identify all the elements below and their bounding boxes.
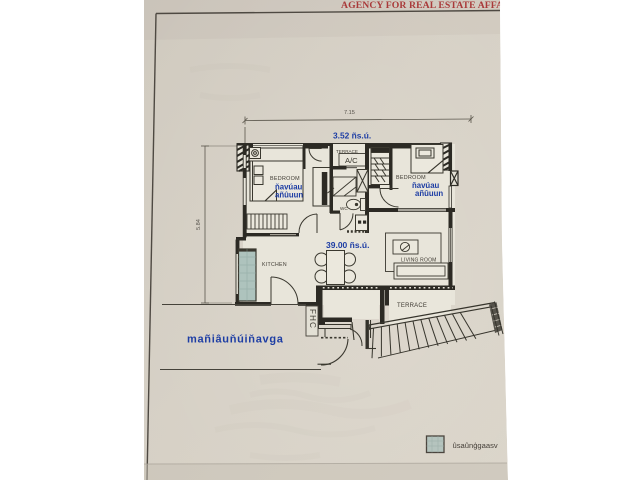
svg-text:TERRACE: TERRACE	[397, 303, 427, 309]
svg-text:añûuun: añûuun	[415, 189, 443, 198]
svg-text:WC: WC	[340, 206, 348, 211]
svg-text:mañiâuňúiňavga: mañiâuňúiňavga	[187, 334, 284, 346]
svg-text:7.15: 7.15	[344, 110, 355, 116]
svg-text:3.52 ñs.ú.: 3.52 ñs.ú.	[333, 131, 371, 141]
svg-text:FHC: FHC	[308, 309, 317, 329]
svg-text:5.84: 5.84	[196, 219, 202, 230]
svg-text:ûsaûnģgaasv: ûsaûnģgaasv	[453, 441, 498, 450]
svg-text:LIVING ROOM: LIVING ROOM	[401, 258, 437, 264]
svg-text:KITCHEN: KITCHEN	[262, 262, 287, 268]
svg-text:39.00 ñs.ú.: 39.00 ñs.ú.	[326, 240, 369, 250]
svg-text:añûuun: añûuun	[275, 191, 303, 200]
svg-text:AGENCY FOR REAL ESTATE AFFAI: AGENCY FOR REAL ESTATE AFFAI	[341, 0, 507, 11]
svg-text:BEDROOM: BEDROOM	[270, 176, 300, 182]
svg-text:A/C: A/C	[345, 156, 358, 165]
